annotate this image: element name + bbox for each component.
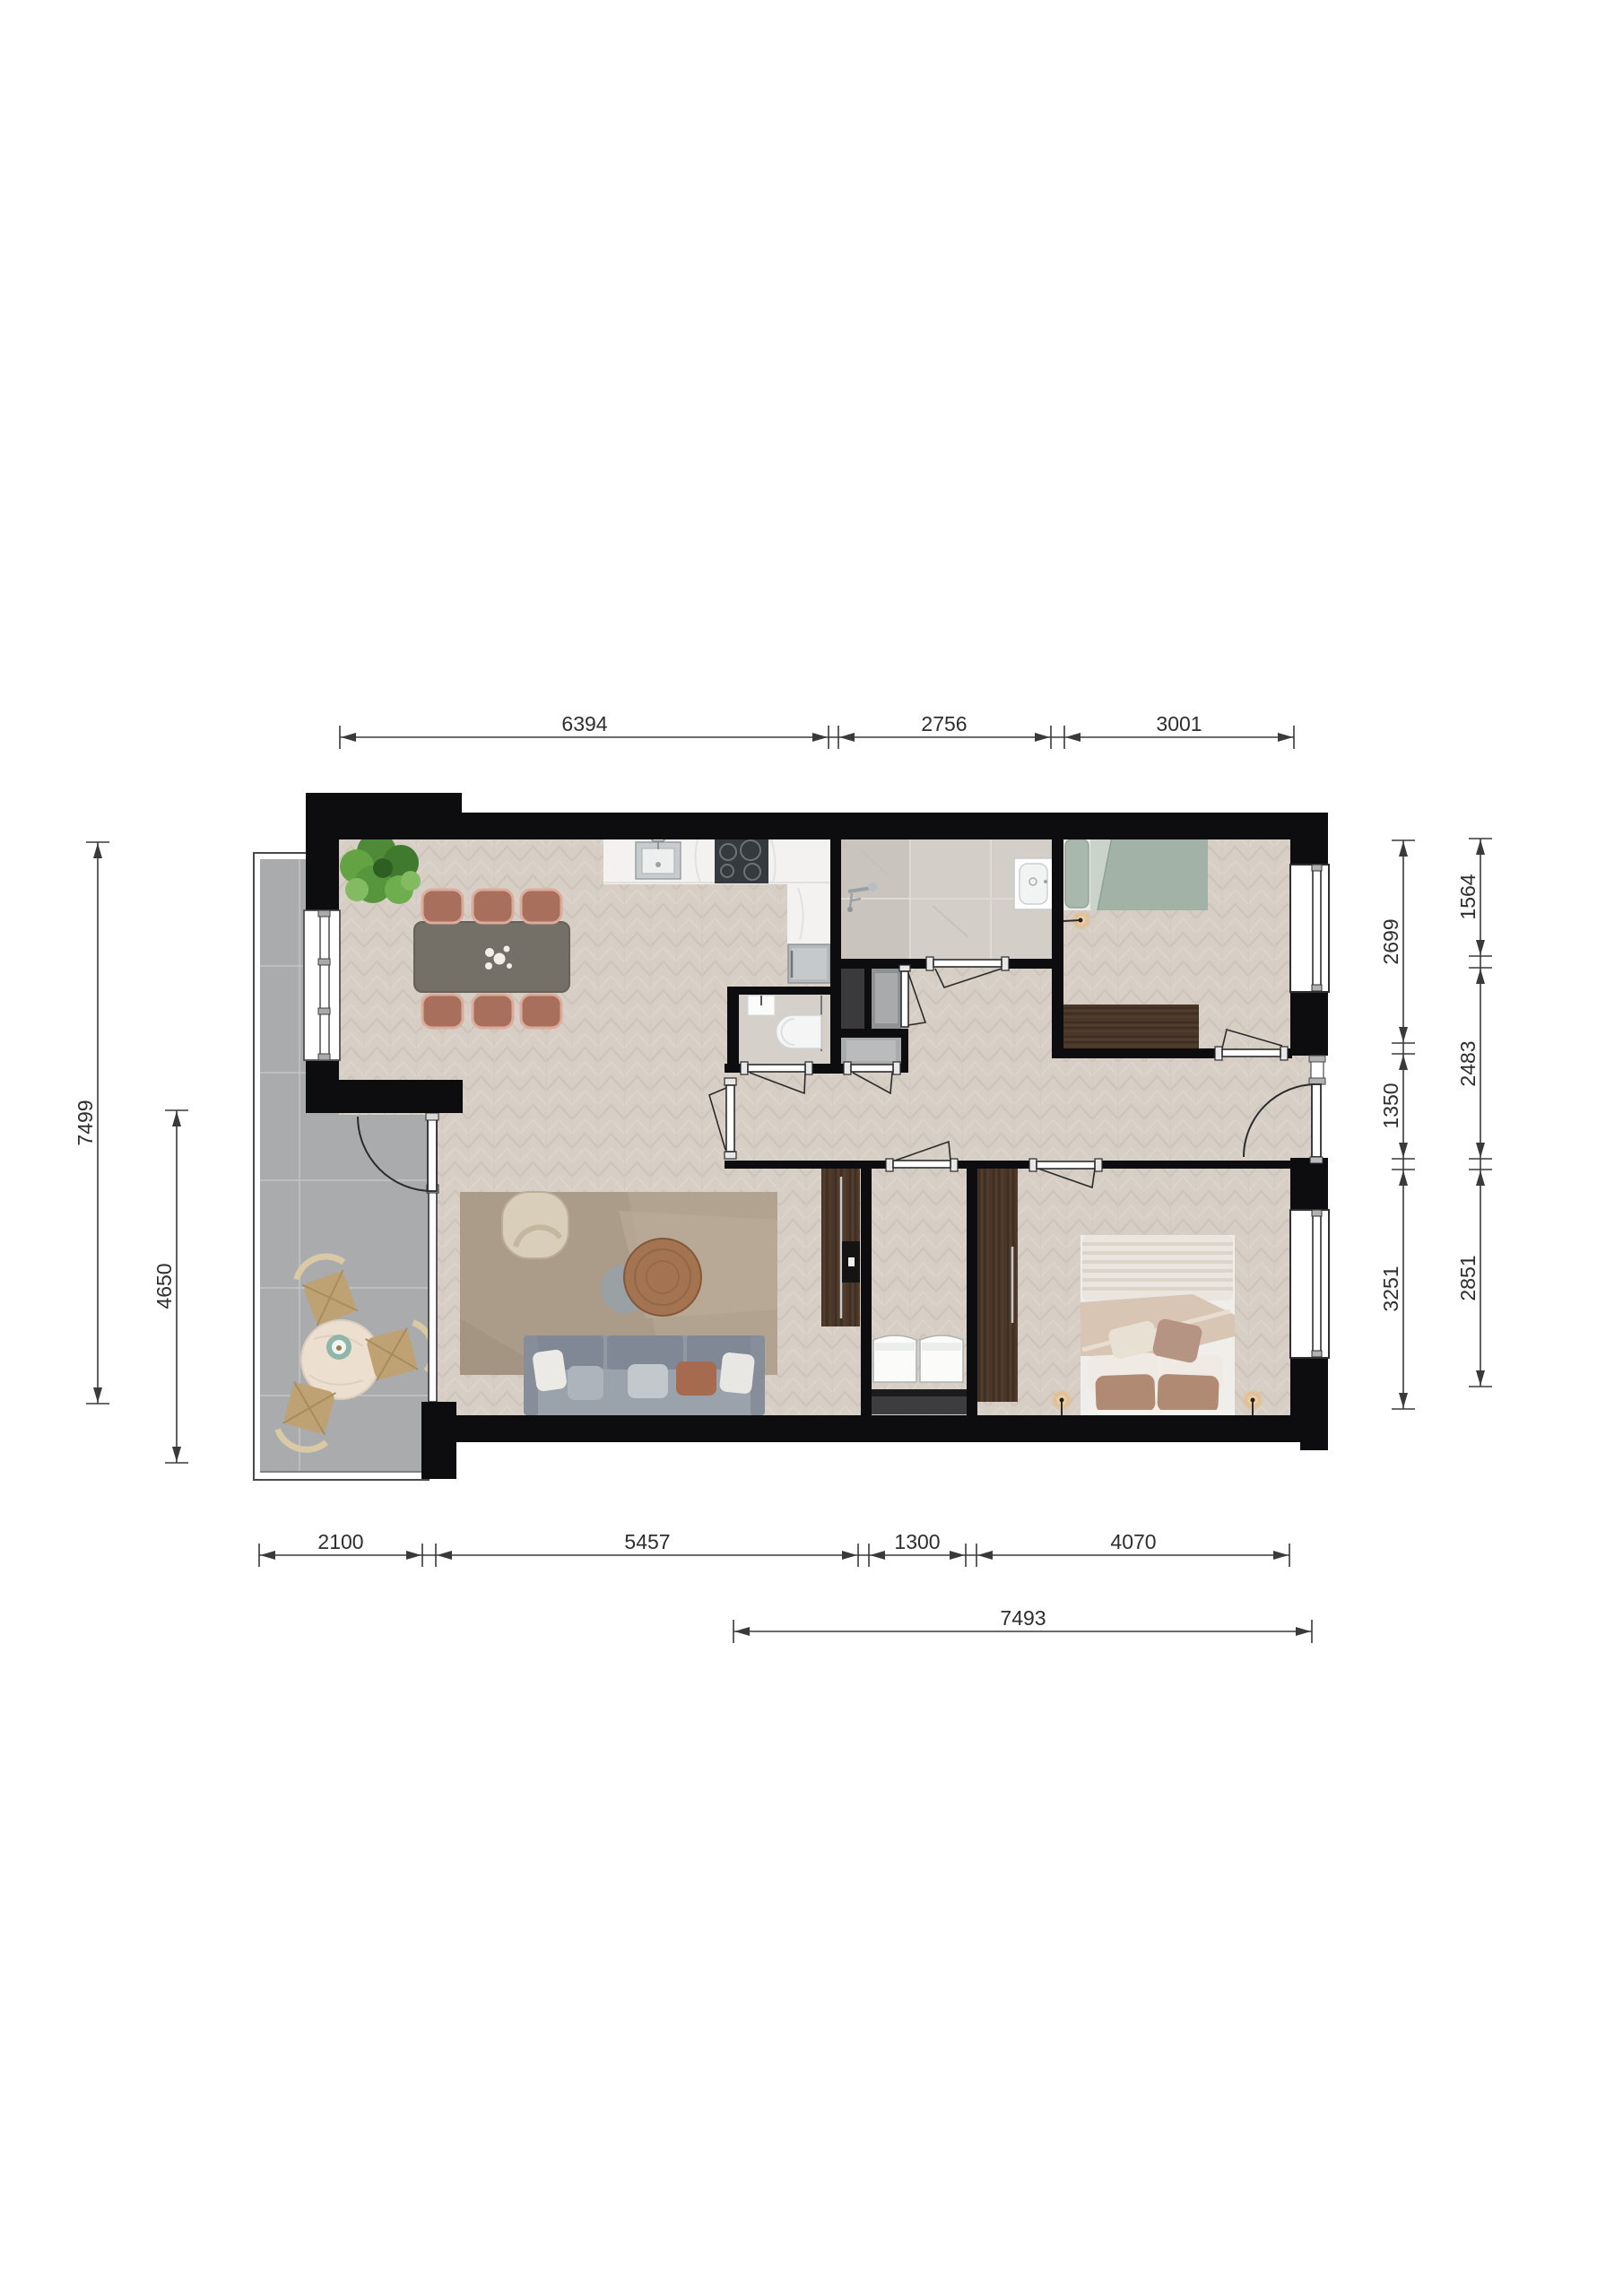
- svg-text:1300: 1300: [894, 1530, 940, 1553]
- svg-text:2483: 2483: [1456, 1040, 1480, 1086]
- svg-text:7493: 7493: [1000, 1606, 1046, 1630]
- svg-text:3251: 3251: [1379, 1265, 1402, 1311]
- svg-text:3001: 3001: [1156, 712, 1202, 735]
- svg-text:2699: 2699: [1379, 918, 1402, 964]
- svg-text:2851: 2851: [1456, 1255, 1480, 1300]
- svg-text:2756: 2756: [921, 712, 967, 735]
- svg-text:1564: 1564: [1456, 874, 1480, 919]
- svg-text:7499: 7499: [74, 1100, 97, 1145]
- svg-text:6394: 6394: [561, 712, 607, 735]
- svg-text:4650: 4650: [152, 1263, 176, 1309]
- svg-text:5457: 5457: [624, 1530, 670, 1553]
- svg-text:4070: 4070: [1110, 1530, 1156, 1553]
- svg-text:1350: 1350: [1379, 1083, 1402, 1128]
- svg-text:2100: 2100: [317, 1530, 363, 1553]
